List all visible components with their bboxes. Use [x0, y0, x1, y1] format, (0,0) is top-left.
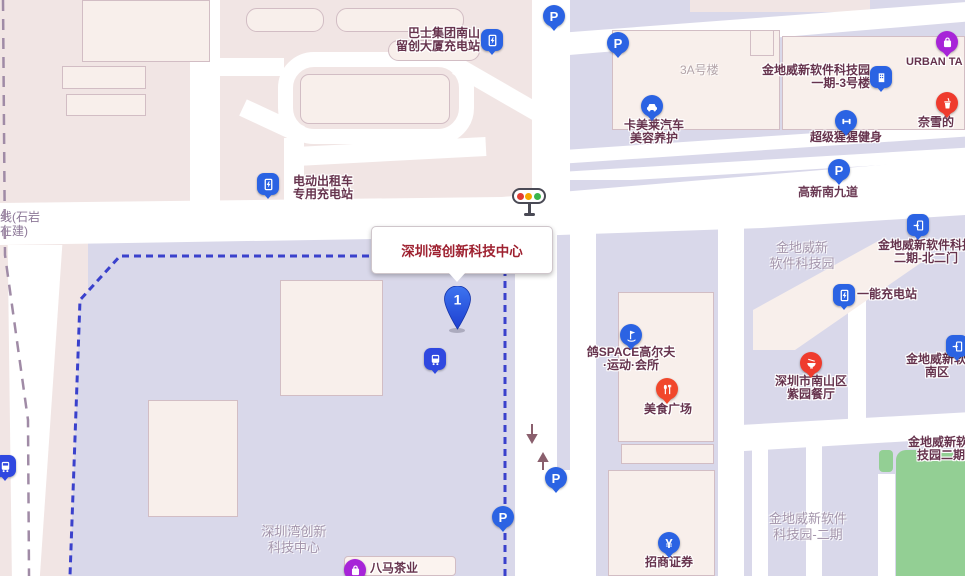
- yuan-icon[interactable]: ¥: [658, 532, 680, 554]
- shopping-bag-icon[interactable]: [936, 31, 958, 53]
- building: [621, 444, 714, 464]
- gate-icon[interactable]: [946, 335, 965, 357]
- road-label-gaoxin: 高新南九道: [798, 186, 858, 199]
- area-label-3a: 3A号楼: [680, 63, 719, 77]
- traffic-green-dot: [534, 193, 541, 200]
- svg-text:1: 1: [454, 292, 462, 308]
- charging-station-icon[interactable]: [257, 173, 279, 195]
- charging-station-icon[interactable]: [481, 29, 503, 51]
- charging-station-icon[interactable]: [833, 284, 855, 306]
- poi-label-yineng-charging[interactable]: 一能充电站: [857, 288, 917, 301]
- bus-station-icon[interactable]: [0, 455, 16, 477]
- green-area: [896, 450, 965, 576]
- parking-icon[interactable]: P: [828, 159, 850, 181]
- parking-icon[interactable]: P: [607, 32, 629, 54]
- metro-line-label: 线(石岩在建): [0, 210, 40, 239]
- result-marker-1[interactable]: 1: [444, 286, 471, 331]
- building: [300, 74, 450, 124]
- building: [66, 94, 146, 116]
- road: [878, 474, 895, 576]
- restaurant-icon[interactable]: [656, 378, 678, 400]
- building: [82, 0, 210, 62]
- bowl-icon[interactable]: [800, 352, 822, 374]
- area-label-jindi-phase2: 金地威新软件科技园-二期: [748, 511, 868, 542]
- bus-station-icon[interactable]: [424, 348, 446, 370]
- area-label-jindi-park: 金地威新软件科技园: [752, 240, 852, 271]
- city-block: [690, 0, 870, 12]
- poi-label-bama-tea[interactable]: 八马茶业: [370, 562, 418, 575]
- traffic-red-dot: [517, 193, 524, 200]
- building-icon[interactable]: [870, 66, 892, 88]
- road: [214, 58, 284, 76]
- road: [718, 225, 744, 576]
- poi-label-bus-depot-charging[interactable]: 巴士集团南山留创大厦充电站: [368, 27, 480, 53]
- poi-label-ev-taxi-charging[interactable]: 电动出租车专用充电站: [280, 175, 366, 201]
- golf-icon[interactable]: [620, 324, 642, 346]
- tea-cup-icon[interactable]: [936, 92, 958, 114]
- building: [62, 66, 146, 89]
- car-icon[interactable]: [641, 95, 663, 117]
- poi-label-north-gate2[interactable]: 金地威新软件科技二期-北二门: [856, 239, 965, 265]
- green-area: [879, 450, 893, 472]
- poi-label-jindi-phase2-poi[interactable]: 金地威新软技园二期: [908, 436, 965, 462]
- gym-icon[interactable]: [835, 110, 857, 132]
- poi-callout[interactable]: 深圳湾创新科技中心: [371, 226, 553, 274]
- building: [280, 280, 383, 396]
- building: [148, 400, 238, 517]
- gate-icon[interactable]: [907, 214, 929, 236]
- callout-title: 深圳湾创新科技中心: [401, 240, 523, 260]
- map-canvas[interactable]: 线(石岩在建) 3A号楼 金地威新软件科技园 金地威新软件科技园-二期 深圳湾创…: [0, 0, 965, 576]
- poi-label-urban-tag[interactable]: URBAN TA: [906, 56, 963, 68]
- parking-icon[interactable]: P: [492, 506, 514, 528]
- building: [750, 30, 774, 56]
- traffic-amber-dot: [525, 193, 532, 200]
- area-label-szbay: 深圳湾创新科技中心: [244, 524, 344, 555]
- traffic-light-icon: [512, 188, 546, 216]
- shopping-bag-icon[interactable]: [344, 559, 366, 576]
- parking-icon[interactable]: P: [543, 5, 565, 27]
- building: [246, 8, 324, 32]
- parking-icon[interactable]: P: [545, 467, 567, 489]
- poi-label-jindi-phase1-bldg3[interactable]: 金地威新软件科技园一期-3号楼: [742, 64, 870, 90]
